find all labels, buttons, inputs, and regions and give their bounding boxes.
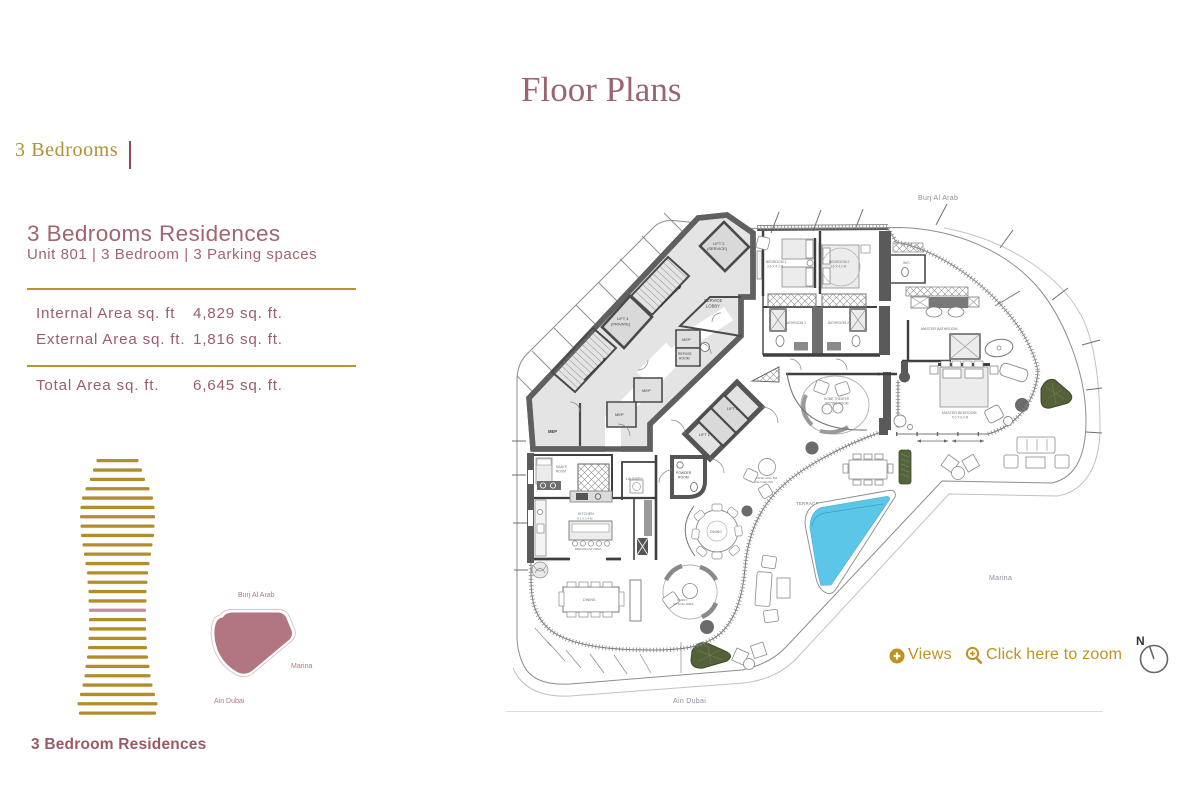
svg-text:ROOM: ROOM: [556, 470, 566, 474]
svg-text:Ain Dubai: Ain Dubai: [214, 698, 245, 705]
svg-text:BATHROOM 1: BATHROOM 1: [785, 321, 806, 325]
svg-text:BEDROOM 2: BEDROOM 2: [829, 260, 849, 264]
svg-text:BEDROOM 1: BEDROOM 1: [766, 260, 786, 264]
svg-text:Marina: Marina: [291, 663, 313, 670]
svg-text:LIFT 4: LIFT 4: [617, 316, 629, 321]
svg-text:MASTER BATHROOM: MASTER BATHROOM: [921, 327, 957, 331]
svg-text:N: N: [1136, 634, 1145, 648]
svg-text:ROOM: ROOM: [678, 476, 689, 480]
svg-text:LOBBY: LOBBY: [706, 304, 720, 309]
svg-text:MEP: MEP: [548, 429, 557, 434]
svg-text:DINING: DINING: [710, 530, 722, 534]
svg-text:KITCHEN: KITCHEN: [578, 512, 594, 516]
svg-text:(PRIVATE): (PRIVATE): [611, 322, 631, 327]
svg-text:DINING: DINING: [583, 598, 596, 602]
svg-text:REFUSE: REFUSE: [678, 352, 692, 356]
svg-text:Marina: Marina: [989, 575, 1012, 582]
svg-text:3.6 X 4.2 M: 3.6 X 4.2 M: [830, 265, 847, 269]
svg-text:LIFT 1: LIFT 1: [699, 433, 710, 437]
svg-text:BREAKFAST AREA: BREAKFAST AREA: [575, 547, 601, 551]
svg-text:Burj Al Arab: Burj Al Arab: [238, 592, 275, 599]
svg-text:MEP: MEP: [682, 337, 691, 342]
svg-text:MAID'S: MAID'S: [556, 465, 567, 469]
svg-text:MEP: MEP: [615, 412, 624, 417]
svg-text:SITTING AREA: SITTING AREA: [673, 602, 694, 606]
svg-text:4.1 X 3.4 M: 4.1 X 3.4 M: [577, 517, 593, 521]
svg-text:5.0 X 6.0 M: 5.0 X 6.0 M: [952, 416, 969, 420]
svg-text:W/C: W/C: [903, 261, 910, 265]
svg-text:MEP: MEP: [642, 388, 651, 393]
svg-text:SERVICE: SERVICE: [704, 298, 723, 303]
svg-text:BATHROOM 2: BATHROOM 2: [828, 321, 849, 325]
svg-text:MASTER BEDROOM: MASTER BEDROOM: [942, 411, 977, 415]
svg-text:HIGH CEILING: HIGH CEILING: [753, 480, 774, 484]
svg-text:ROOM: ROOM: [679, 357, 690, 361]
svg-text:LAUNDRY: LAUNDRY: [626, 477, 644, 481]
svg-text:SITTING ROOM: SITTING ROOM: [825, 402, 849, 406]
svg-text:(SERVICE): (SERVICE): [707, 246, 728, 251]
svg-text:LIFT 2: LIFT 2: [727, 407, 738, 411]
svg-text:Burj Al Arab: Burj Al Arab: [918, 195, 958, 202]
svg-text:Ain Dubai: Ain Dubai: [673, 698, 706, 705]
svg-text:3.6 X 4.2 M: 3.6 X 4.2 M: [767, 265, 784, 269]
svg-text:POWDER: POWDER: [676, 471, 692, 475]
svg-text:HOME THEATER: HOME THEATER: [824, 397, 850, 401]
